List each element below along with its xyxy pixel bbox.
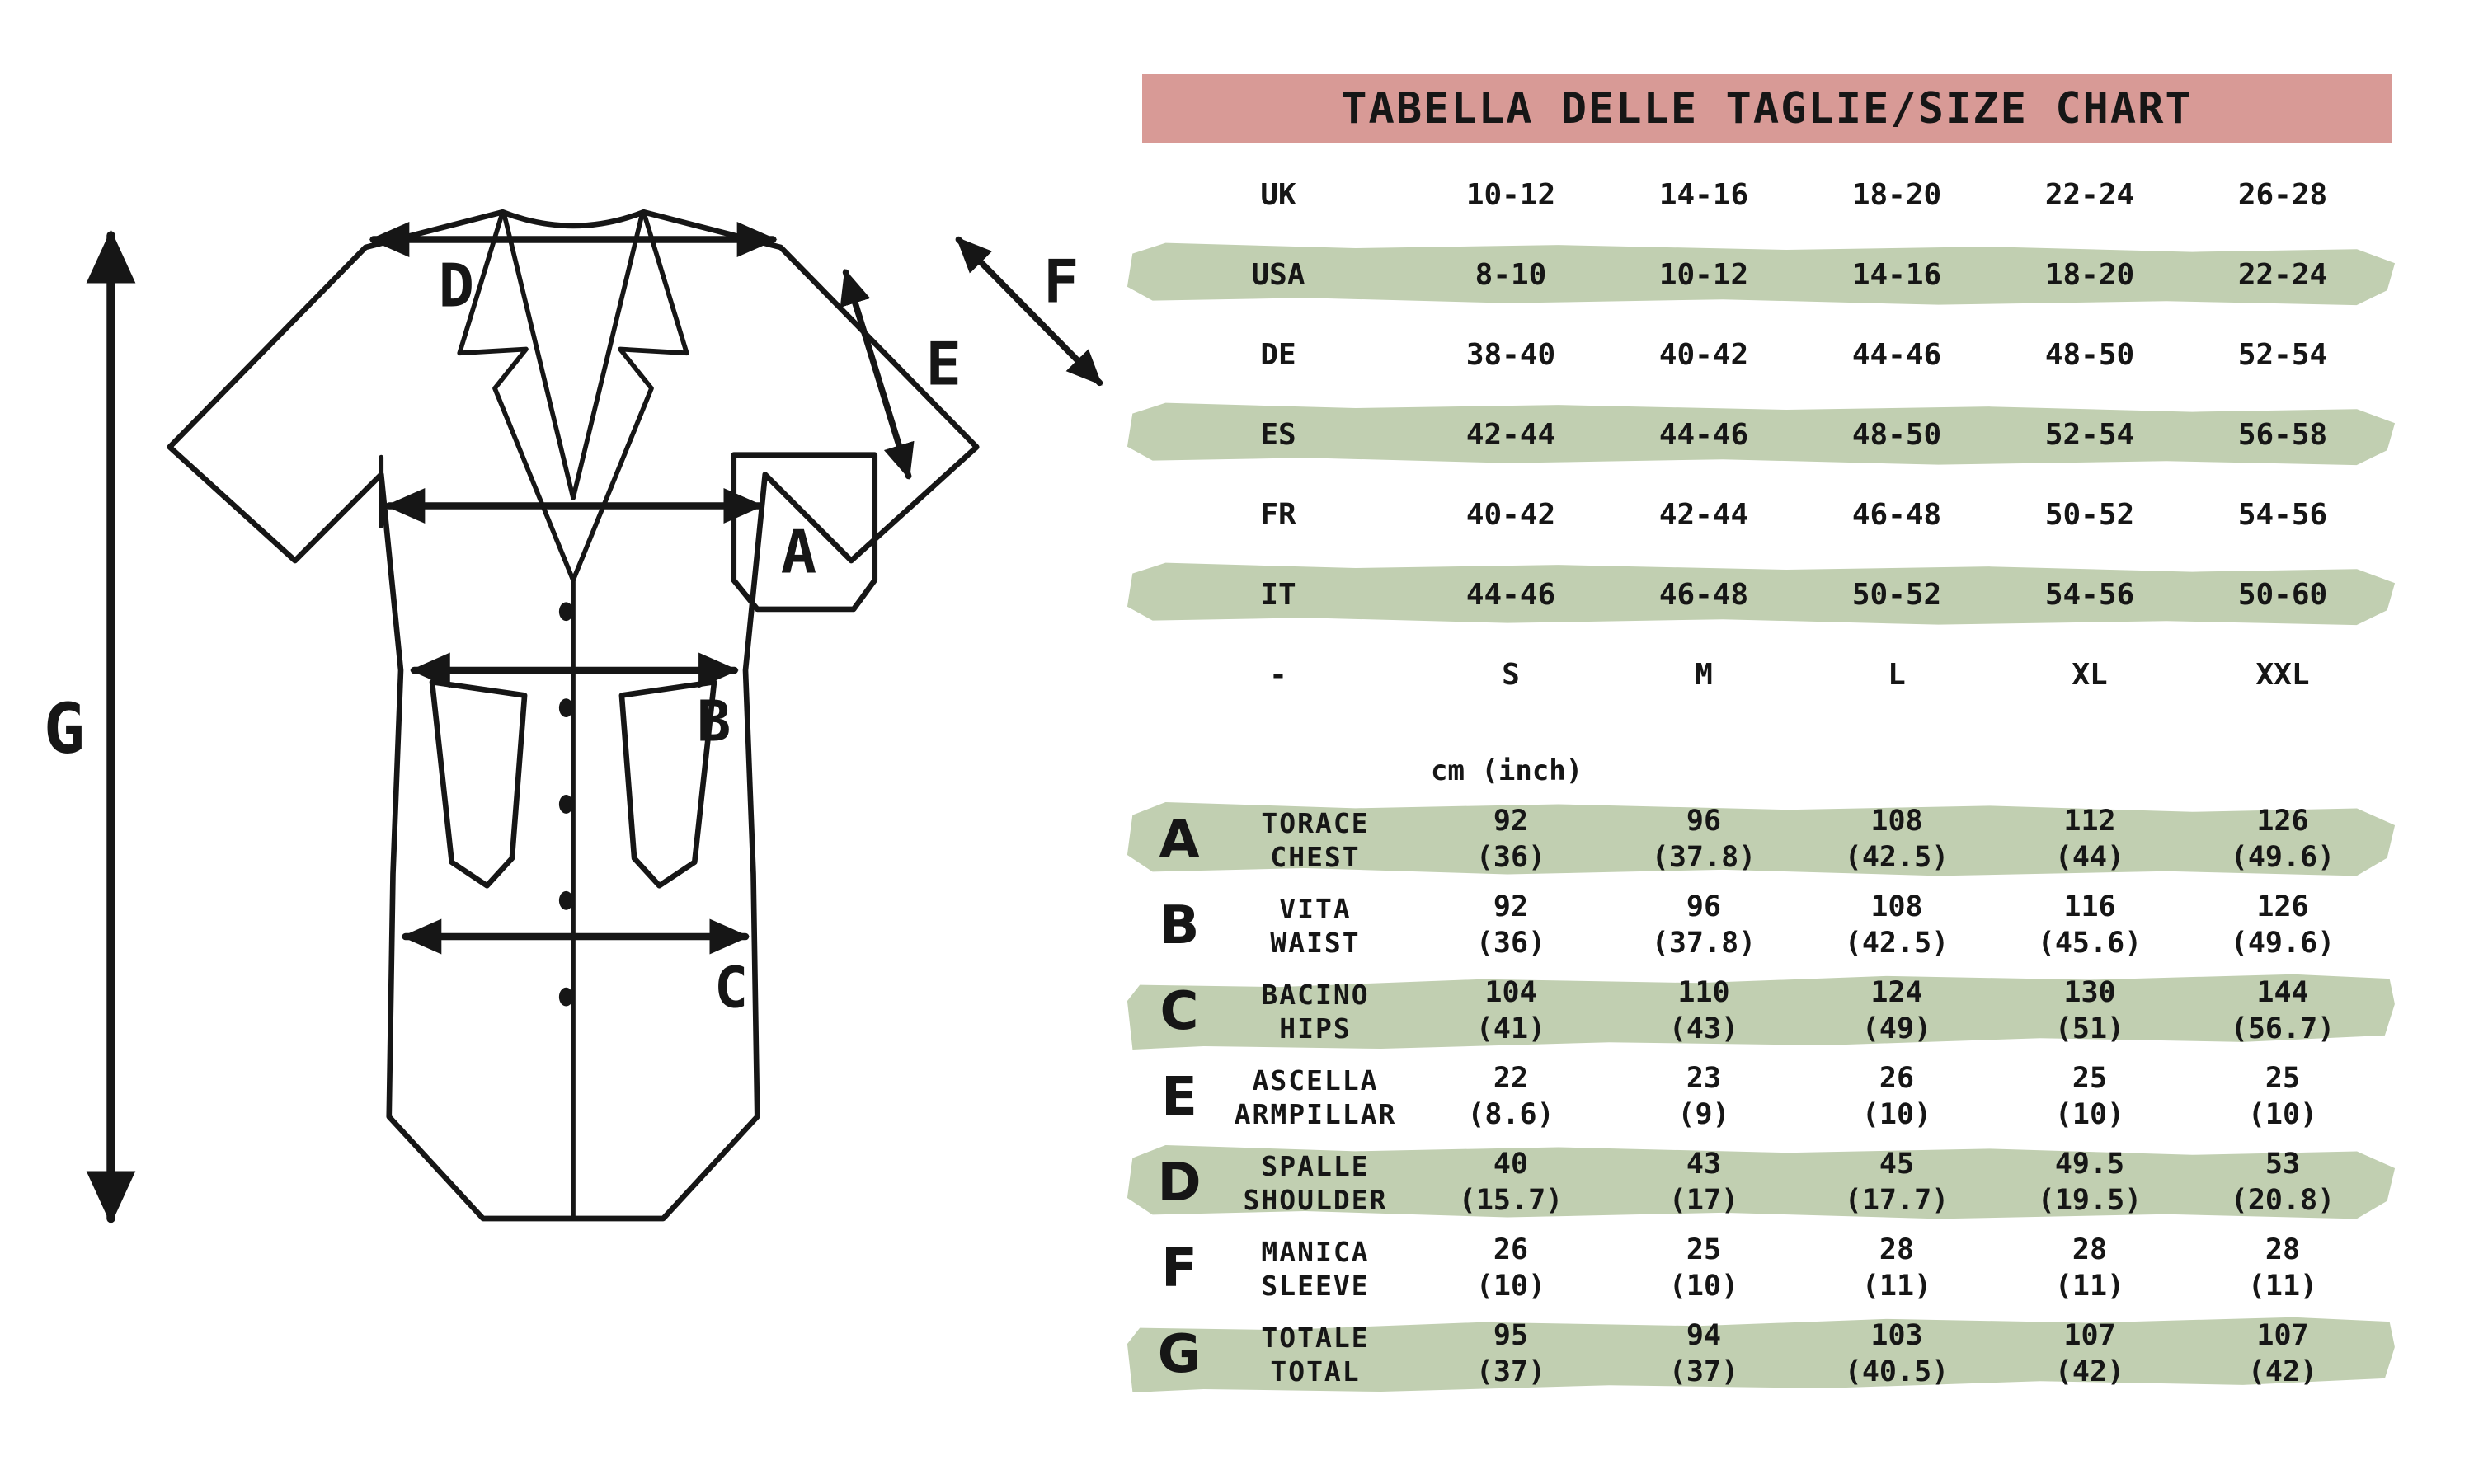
size-region-label: USA xyxy=(1142,258,1414,292)
measure-value: 103(40.5) xyxy=(1800,1318,1993,1391)
size-chart-page: D F E A B C G TABELLA DELLE TAGLIE/SIZE … xyxy=(0,0,2474,1484)
size-value: 40-42 xyxy=(1607,338,1800,372)
measure-row: EASCELLAARMPILLAR22(8.6)23(9)26(10)25(10… xyxy=(1142,1054,2392,1140)
button-dot xyxy=(559,602,573,621)
measure-letter: G xyxy=(1142,1328,1216,1381)
measure-inch-value: (8.6) xyxy=(1414,1097,1607,1134)
size-region-label: DE xyxy=(1142,338,1414,372)
measure-value: 107(42) xyxy=(2186,1318,2379,1391)
size-row: FR40-4242-4446-4850-5254-56 xyxy=(1142,475,2392,555)
measure-value: 28(11) xyxy=(1993,1233,2186,1305)
measure-inch-value: (36) xyxy=(1414,926,1607,962)
measure-inch-value: (56.7) xyxy=(2186,1012,2379,1048)
size-value: 10-12 xyxy=(1607,258,1800,292)
measure-label: BACINOHIPS xyxy=(1216,978,1414,1046)
measure-label-it: SPALLE xyxy=(1216,1149,1414,1183)
measure-value: 53(20.8) xyxy=(2186,1147,2379,1219)
measure-cm-value: 107 xyxy=(2186,1318,2379,1355)
measure-cm-value: 144 xyxy=(2186,975,2379,1012)
size-value: 44-46 xyxy=(1414,578,1607,612)
measure-value: 96(37.8) xyxy=(1607,890,1800,962)
measure-cm-value: 126 xyxy=(2186,890,2379,926)
size-value: 44-46 xyxy=(1607,418,1800,452)
size-value: XL xyxy=(1993,658,2186,692)
diagram-label-e: E xyxy=(926,330,962,399)
size-value: 46-48 xyxy=(1800,498,1993,532)
measure-cm-value: 28 xyxy=(2186,1233,2379,1269)
measure-value: 26(10) xyxy=(1800,1061,1993,1134)
measure-cm-value: 22 xyxy=(1414,1061,1607,1097)
measure-inch-value: (36) xyxy=(1414,840,1607,876)
size-value: 42-44 xyxy=(1414,418,1607,452)
measure-value: 116(45.6) xyxy=(1993,890,2186,962)
measure-inch-value: (42.5) xyxy=(1800,926,1993,962)
measure-cm-value: 53 xyxy=(2186,1147,2379,1183)
measure-cm-value: 96 xyxy=(1607,804,1800,840)
measure-cm-value: 28 xyxy=(1800,1233,1993,1269)
page-title: TABELLA DELLE TAGLIE/SIZE CHART xyxy=(1142,73,2392,145)
measure-value: 108(42.5) xyxy=(1800,890,1993,962)
diagram-label-f: F xyxy=(1043,248,1079,317)
size-value: 46-48 xyxy=(1607,578,1800,612)
measure-inch-value: (49.6) xyxy=(2186,926,2379,962)
measure-cm-value: 124 xyxy=(1800,975,1993,1012)
measure-label: TORACECHEST xyxy=(1216,806,1414,875)
size-value: L xyxy=(1800,658,1993,692)
neck-v-right-line xyxy=(573,214,642,498)
measure-inch-value: (41) xyxy=(1414,1012,1607,1048)
size-value: 18-20 xyxy=(1993,258,2186,292)
measure-inch-value: (37.8) xyxy=(1607,926,1800,962)
measure-cm-value: 96 xyxy=(1607,890,1800,926)
size-value: 22-24 xyxy=(1993,178,2186,212)
measure-value: 130(51) xyxy=(1993,975,2186,1048)
measure-inch-value: (9) xyxy=(1607,1097,1800,1134)
size-value: 22-24 xyxy=(2186,258,2379,292)
measure-label-en: HIPS xyxy=(1216,1012,1414,1045)
measure-inch-value: (10) xyxy=(1993,1097,2186,1134)
measure-value: 107(42) xyxy=(1993,1318,2186,1391)
measure-value: 45(17.7) xyxy=(1800,1147,1993,1219)
measure-letter: E xyxy=(1142,1071,1216,1124)
measure-label: MANICASLEEVE xyxy=(1216,1235,1414,1303)
measure-cm-value: 26 xyxy=(1800,1061,1993,1097)
measure-table: ATORACECHEST92(36)96(37.8)108(42.5)112(4… xyxy=(1142,797,2392,1397)
measure-row: CBACINOHIPS104(41)110(43)124(49)130(51)1… xyxy=(1142,969,2392,1054)
size-value: 44-46 xyxy=(1800,338,1993,372)
measure-value: 92(36) xyxy=(1414,890,1607,962)
measure-value: 108(42.5) xyxy=(1800,804,1993,876)
measure-cm-value: 130 xyxy=(1993,975,2186,1012)
measure-inch-value: (51) xyxy=(1993,1012,2186,1048)
measure-label-it: TORACE xyxy=(1216,806,1414,840)
measure-row: DSPALLESHOULDER40(15.7)43(17)45(17.7)49.… xyxy=(1142,1140,2392,1226)
measure-label: TOTALETOTAL xyxy=(1216,1321,1414,1389)
measure-value: 95(37) xyxy=(1414,1318,1607,1391)
measure-cm-value: 108 xyxy=(1800,804,1993,840)
measure-label-en: WAIST xyxy=(1216,926,1414,960)
size-value: 54-56 xyxy=(1993,578,2186,612)
size-value: 8-10 xyxy=(1414,258,1607,292)
diagram-label-g: G xyxy=(44,688,85,769)
measure-inch-value: (20.8) xyxy=(2186,1183,2379,1219)
measure-cm-value: 26 xyxy=(1414,1233,1607,1269)
measure-cm-value: 23 xyxy=(1607,1061,1800,1097)
measure-cm-value: 40 xyxy=(1414,1147,1607,1183)
measure-cm-value: 28 xyxy=(1993,1233,2186,1269)
diagram-label-c: C xyxy=(714,956,748,1021)
measure-value: 94(37) xyxy=(1607,1318,1800,1391)
measure-row: FMANICASLEEVE26(10)25(10)28(11)28(11)28(… xyxy=(1142,1226,2392,1312)
measure-label-en: SHOULDER xyxy=(1216,1183,1414,1217)
measure-inch-value: (42) xyxy=(1993,1355,2186,1391)
measure-inch-value: (37) xyxy=(1414,1355,1607,1391)
size-region-label: UK xyxy=(1142,178,1414,212)
measure-letter: D xyxy=(1142,1157,1216,1209)
measure-letter: F xyxy=(1142,1242,1216,1295)
size-row: DE38-4040-4244-4648-5052-54 xyxy=(1142,315,2392,395)
measure-value: 28(11) xyxy=(2186,1233,2379,1305)
garment-diagram: D F E A B C G xyxy=(25,122,1122,1266)
measure-value: 26(10) xyxy=(1414,1233,1607,1305)
size-region-label: IT xyxy=(1142,578,1414,612)
measure-value: 25(10) xyxy=(1607,1233,1800,1305)
measure-value: 25(10) xyxy=(1993,1061,2186,1134)
measure-label-en: SLEEVE xyxy=(1216,1269,1414,1303)
size-value: 42-44 xyxy=(1607,498,1800,532)
measure-cm-value: 126 xyxy=(2186,804,2379,840)
diagram-label-b: B xyxy=(697,690,731,755)
measure-inch-value: (40.5) xyxy=(1800,1355,1993,1391)
size-row: IT44-4646-4850-5254-5650-60 xyxy=(1142,555,2392,635)
neck-v-left-line xyxy=(504,214,573,498)
measure-value: 23(9) xyxy=(1607,1061,1800,1134)
measure-value: 126(49.6) xyxy=(2186,804,2379,876)
size-value: 50-60 xyxy=(2186,578,2379,612)
measure-inch-value: (19.5) xyxy=(1993,1183,2186,1219)
measure-cm-value: 45 xyxy=(1800,1147,1993,1183)
size-value: 56-58 xyxy=(2186,418,2379,452)
measure-value: 40(15.7) xyxy=(1414,1147,1607,1219)
measure-cm-value: 110 xyxy=(1607,975,1800,1012)
measure-cm-value: 112 xyxy=(1993,804,2186,840)
button-dot xyxy=(559,795,573,814)
button-dot xyxy=(559,891,573,910)
measure-label-en: ARMPILLAR xyxy=(1216,1097,1414,1131)
size-value: 38-40 xyxy=(1414,338,1607,372)
measure-cm-value: 94 xyxy=(1607,1318,1800,1355)
measure-value: 144(56.7) xyxy=(2186,975,2379,1048)
size-value: S xyxy=(1414,658,1607,692)
size-value: M xyxy=(1607,658,1800,692)
measure-cm-value: 43 xyxy=(1607,1147,1800,1183)
size-value: 14-16 xyxy=(1800,258,1993,292)
measure-letter: A xyxy=(1142,814,1216,866)
measure-inch-value: (49) xyxy=(1800,1012,1993,1048)
measure-label-it: BACINO xyxy=(1216,978,1414,1012)
measure-cm-value: 103 xyxy=(1800,1318,1993,1355)
arrow-armpillar-E xyxy=(846,272,909,476)
diagram-label-a: A xyxy=(781,518,816,587)
measure-inch-value: (10) xyxy=(2186,1097,2379,1134)
measure-inch-value: (45.6) xyxy=(1993,926,2186,962)
measure-value: 110(43) xyxy=(1607,975,1800,1048)
size-value: 54-56 xyxy=(2186,498,2379,532)
measure-value: 25(10) xyxy=(2186,1061,2379,1134)
measure-value: 96(37.8) xyxy=(1607,804,1800,876)
size-value: 10-12 xyxy=(1414,178,1607,212)
measure-cm-value: 49.5 xyxy=(1993,1147,2186,1183)
waist-pocket-left xyxy=(432,682,524,885)
measure-row: BVITAWAIST92(36)96(37.8)108(42.5)116(45.… xyxy=(1142,883,2392,969)
measure-value: 43(17) xyxy=(1607,1147,1800,1219)
measure-label: VITAWAIST xyxy=(1216,892,1414,960)
measure-letter: C xyxy=(1142,985,1216,1038)
measure-cm-value: 25 xyxy=(1607,1233,1800,1269)
measure-value: 126(49.6) xyxy=(2186,890,2379,962)
size-row: -SMLXLXXL xyxy=(1142,635,2392,715)
measure-value: 124(49) xyxy=(1800,975,1993,1048)
units-row: cm (inch) xyxy=(1142,744,2392,797)
size-region-label: - xyxy=(1142,658,1414,692)
measure-label-en: TOTAL xyxy=(1216,1355,1414,1388)
size-value: 48-50 xyxy=(1800,418,1993,452)
measure-cm-value: 107 xyxy=(1993,1318,2186,1355)
measure-inch-value: (42.5) xyxy=(1800,840,1993,876)
measure-inch-value: (44) xyxy=(1993,840,2186,876)
size-value: 40-42 xyxy=(1414,498,1607,532)
size-value: 48-50 xyxy=(1993,338,2186,372)
measure-inch-value: (37) xyxy=(1607,1355,1800,1391)
size-row: UK10-1214-1618-2022-2426-28 xyxy=(1142,155,2392,235)
size-value: 14-16 xyxy=(1607,178,1800,212)
size-table: UK10-1214-1618-2022-2426-28USA8-1010-121… xyxy=(1142,155,2392,715)
size-value: 52-54 xyxy=(2186,338,2379,372)
measure-inch-value: (42) xyxy=(2186,1355,2379,1391)
measure-label-it: MANICA xyxy=(1216,1235,1414,1269)
measure-cm-value: 116 xyxy=(1993,890,2186,926)
measure-label-it: VITA xyxy=(1216,892,1414,926)
measure-label: ASCELLAARMPILLAR xyxy=(1216,1064,1414,1132)
measure-value: 112(44) xyxy=(1993,804,2186,876)
diagram-label-d: D xyxy=(439,251,474,321)
size-region-label: ES xyxy=(1142,418,1414,452)
measure-cm-value: 95 xyxy=(1414,1318,1607,1355)
measure-cm-value: 104 xyxy=(1414,975,1607,1012)
measure-row: GTOTALETOTAL95(37)94(37)103(40.5)107(42)… xyxy=(1142,1312,2392,1397)
measure-inch-value: (37.8) xyxy=(1607,840,1800,876)
button-dot xyxy=(559,698,573,717)
measure-inch-value: (10) xyxy=(1607,1269,1800,1305)
measure-inch-value: (43) xyxy=(1607,1012,1800,1048)
size-value: 52-54 xyxy=(1993,418,2186,452)
size-value: 50-52 xyxy=(1800,578,1993,612)
measure-inch-value: (11) xyxy=(1993,1269,2186,1305)
measure-cm-value: 92 xyxy=(1414,804,1607,840)
size-chart-panel: TABELLA DELLE TAGLIE/SIZE CHART UK10-121… xyxy=(1142,73,2392,1397)
measure-row: ATORACECHEST92(36)96(37.8)108(42.5)112(4… xyxy=(1142,797,2392,883)
size-region-label: FR xyxy=(1142,498,1414,532)
measure-value: 104(41) xyxy=(1414,975,1607,1048)
measure-letter: B xyxy=(1142,899,1216,952)
measure-inch-value: (17) xyxy=(1607,1183,1800,1219)
measure-label: SPALLESHOULDER xyxy=(1216,1149,1414,1218)
measure-inch-value: (15.7) xyxy=(1414,1183,1607,1219)
button-dot xyxy=(559,988,573,1007)
measure-value: 22(8.6) xyxy=(1414,1061,1607,1134)
measure-inch-value: (17.7) xyxy=(1800,1183,1993,1219)
measure-value: 28(11) xyxy=(1800,1233,1993,1305)
measure-value: 92(36) xyxy=(1414,804,1607,876)
measure-inch-value: (10) xyxy=(1414,1269,1607,1305)
measure-cm-value: 25 xyxy=(2186,1061,2379,1097)
measure-label-it: ASCELLA xyxy=(1216,1064,1414,1097)
size-row: ES42-4444-4648-5052-5456-58 xyxy=(1142,395,2392,475)
measure-inch-value: (49.6) xyxy=(2186,840,2379,876)
size-value: XXL xyxy=(2186,658,2379,692)
measure-label-en: CHEST xyxy=(1216,840,1414,874)
measure-cm-value: 108 xyxy=(1800,890,1993,926)
size-value: 50-52 xyxy=(1993,498,2186,532)
measure-inch-value: (10) xyxy=(1800,1097,1993,1134)
size-row: USA8-1010-1214-1618-2022-24 xyxy=(1142,235,2392,315)
chart-title-row: TABELLA DELLE TAGLIE/SIZE CHART xyxy=(1142,73,2392,145)
size-value: 18-20 xyxy=(1800,178,1993,212)
size-value: 26-28 xyxy=(2186,178,2379,212)
measure-value: 49.5(19.5) xyxy=(1993,1147,2186,1219)
measure-cm-value: 25 xyxy=(1993,1061,2186,1097)
units-note: cm (inch) xyxy=(1431,744,1583,797)
measure-inch-value: (11) xyxy=(1800,1269,1993,1305)
measure-label-it: TOTALE xyxy=(1216,1321,1414,1355)
measure-inch-value: (11) xyxy=(2186,1269,2379,1305)
measure-cm-value: 92 xyxy=(1414,890,1607,926)
